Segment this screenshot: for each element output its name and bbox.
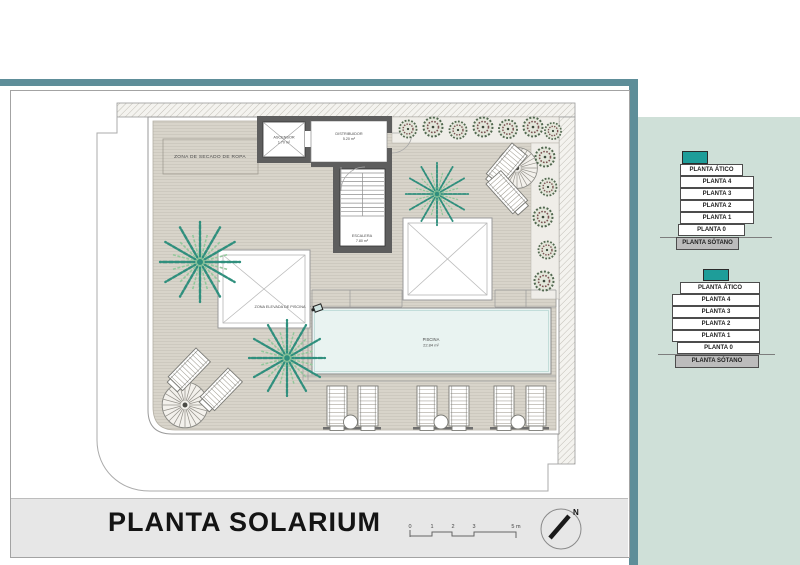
screen: PLANTA SOLARIUM	[0, 0, 800, 565]
floor-item-0[interactable]: PLANTA 0	[678, 224, 745, 236]
floor-highlight-solarium-bottom[interactable]	[703, 269, 729, 281]
floor-item-3[interactable]: PLANTA 3	[680, 188, 754, 200]
floor-item-1[interactable]: PLANTA 1	[672, 330, 760, 342]
floor-item-2[interactable]: PLANTA 2	[672, 318, 760, 330]
floor-highlight-solarium-top[interactable]	[682, 151, 708, 164]
vertical-divider-bar	[629, 79, 638, 565]
page-title: PLANTA SOLARIUM	[108, 507, 381, 538]
top-divider-bar	[0, 79, 632, 86]
floor-item-4[interactable]: PLANTA 4	[672, 294, 760, 306]
floor-item-atico[interactable]: PLANTA ÁTICO	[680, 164, 743, 176]
floor-item-4[interactable]: PLANTA 4	[680, 176, 754, 188]
plan-sheet	[10, 90, 630, 558]
floor-item-sotano[interactable]: PLANTA SÓTANO	[676, 237, 739, 250]
floor-item-0[interactable]: PLANTA 0	[677, 342, 760, 354]
floor-item-atico[interactable]: PLANTA ÁTICO	[680, 282, 760, 294]
floor-item-1[interactable]: PLANTA 1	[680, 212, 754, 224]
floor-item-sotano[interactable]: PLANTA SÓTANO	[675, 355, 759, 368]
floor-item-3[interactable]: PLANTA 3	[672, 306, 760, 318]
floor-item-2[interactable]: PLANTA 2	[680, 200, 754, 212]
